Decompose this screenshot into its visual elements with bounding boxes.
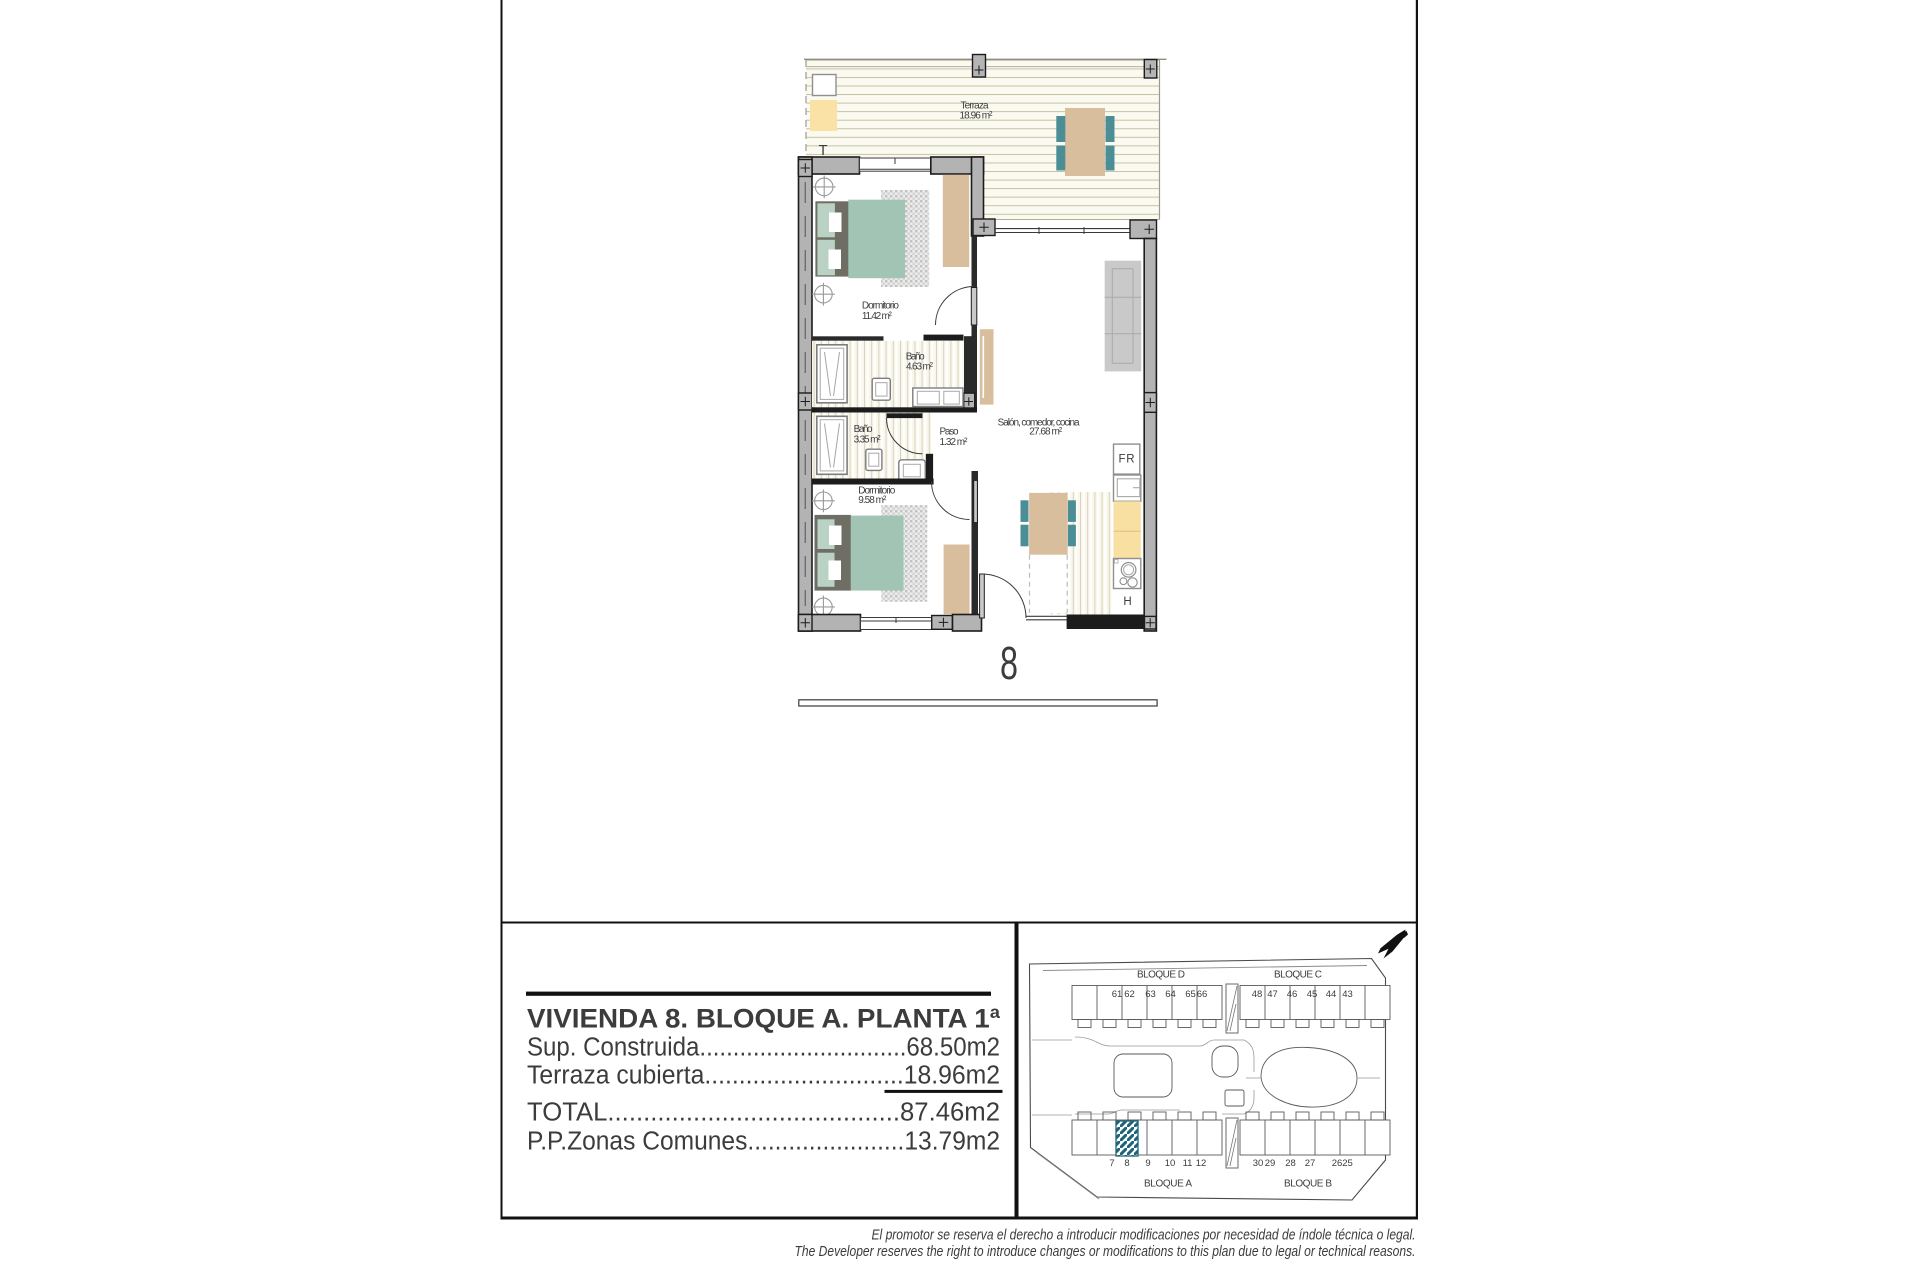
- svg-text:27.68 m²: 27.68 m²: [1029, 427, 1063, 438]
- svg-text:18.96 m²: 18.96 m²: [960, 111, 994, 122]
- svg-text:7: 7: [1109, 1158, 1114, 1169]
- svg-text:12: 12: [1196, 1158, 1207, 1169]
- svg-text:26: 26: [1332, 1158, 1343, 1169]
- svg-text:44: 44: [1326, 989, 1337, 1000]
- svg-text:43: 43: [1342, 989, 1353, 1000]
- svg-text:9: 9: [1145, 1158, 1150, 1169]
- svg-text:1.32 m²: 1.32 m²: [940, 437, 969, 448]
- svg-text:Sup. Construida...............: Sup. Construida.........................…: [527, 1033, 1000, 1061]
- svg-text:63: 63: [1145, 989, 1156, 1000]
- svg-text:H: H: [1123, 596, 1131, 608]
- svg-text:11: 11: [1183, 1158, 1193, 1169]
- svg-text:VIVIENDA 8. BLOQUE A. PLANTA 1: VIVIENDA 8. BLOQUE A. PLANTA 1ª: [527, 1004, 1000, 1034]
- svg-text:47: 47: [1267, 989, 1278, 1000]
- svg-text:8: 8: [1124, 1158, 1129, 1169]
- svg-text:61: 61: [1112, 989, 1123, 1000]
- svg-text:3.35 m²: 3.35 m²: [854, 434, 882, 445]
- svg-text:25: 25: [1342, 1158, 1353, 1169]
- svg-text:62: 62: [1124, 989, 1135, 1000]
- svg-text:46: 46: [1287, 989, 1298, 1000]
- svg-text:65: 65: [1185, 989, 1196, 1000]
- svg-text:11.42 m²: 11.42 m²: [862, 311, 893, 322]
- svg-text:28: 28: [1285, 1158, 1296, 1169]
- svg-text:48: 48: [1252, 989, 1263, 1000]
- svg-text:Paso: Paso: [940, 426, 959, 437]
- svg-text:66: 66: [1197, 989, 1208, 1000]
- svg-text:Terraza cubierta..............: Terraza cubierta........................…: [527, 1061, 1000, 1089]
- svg-text:BLOQUE D: BLOQUE D: [1137, 970, 1185, 981]
- svg-text:BLOQUE B: BLOQUE B: [1284, 1179, 1332, 1190]
- svg-text:TOTAL.........................: TOTAL...................................…: [527, 1098, 1000, 1126]
- svg-text:10: 10: [1165, 1158, 1176, 1169]
- svg-text:9.58 m²: 9.58 m²: [858, 495, 887, 506]
- svg-text:29: 29: [1265, 1158, 1276, 1169]
- svg-text:4.63 m²: 4.63 m²: [906, 362, 934, 373]
- svg-text:64: 64: [1165, 989, 1176, 1000]
- svg-text:BLOQUE A: BLOQUE A: [1144, 1179, 1192, 1190]
- svg-text:P.P.Zonas Comunes.............: P.P.Zonas Comunes.......................…: [527, 1128, 1000, 1156]
- svg-text:27: 27: [1305, 1158, 1316, 1169]
- svg-text:FR: FR: [1119, 454, 1135, 466]
- svg-text:45: 45: [1307, 989, 1318, 1000]
- svg-text:The Developer reserves the rig: The Developer reserves the right to intr…: [795, 1243, 1416, 1260]
- svg-text:Baño: Baño: [854, 424, 873, 435]
- svg-text:BLOQUE C: BLOQUE C: [1274, 970, 1322, 981]
- svg-text:El promotor se reserva el dere: El promotor se reserva el derecho a intr…: [872, 1227, 1416, 1244]
- svg-text:8: 8: [1000, 637, 1018, 689]
- svg-text:30: 30: [1253, 1158, 1264, 1169]
